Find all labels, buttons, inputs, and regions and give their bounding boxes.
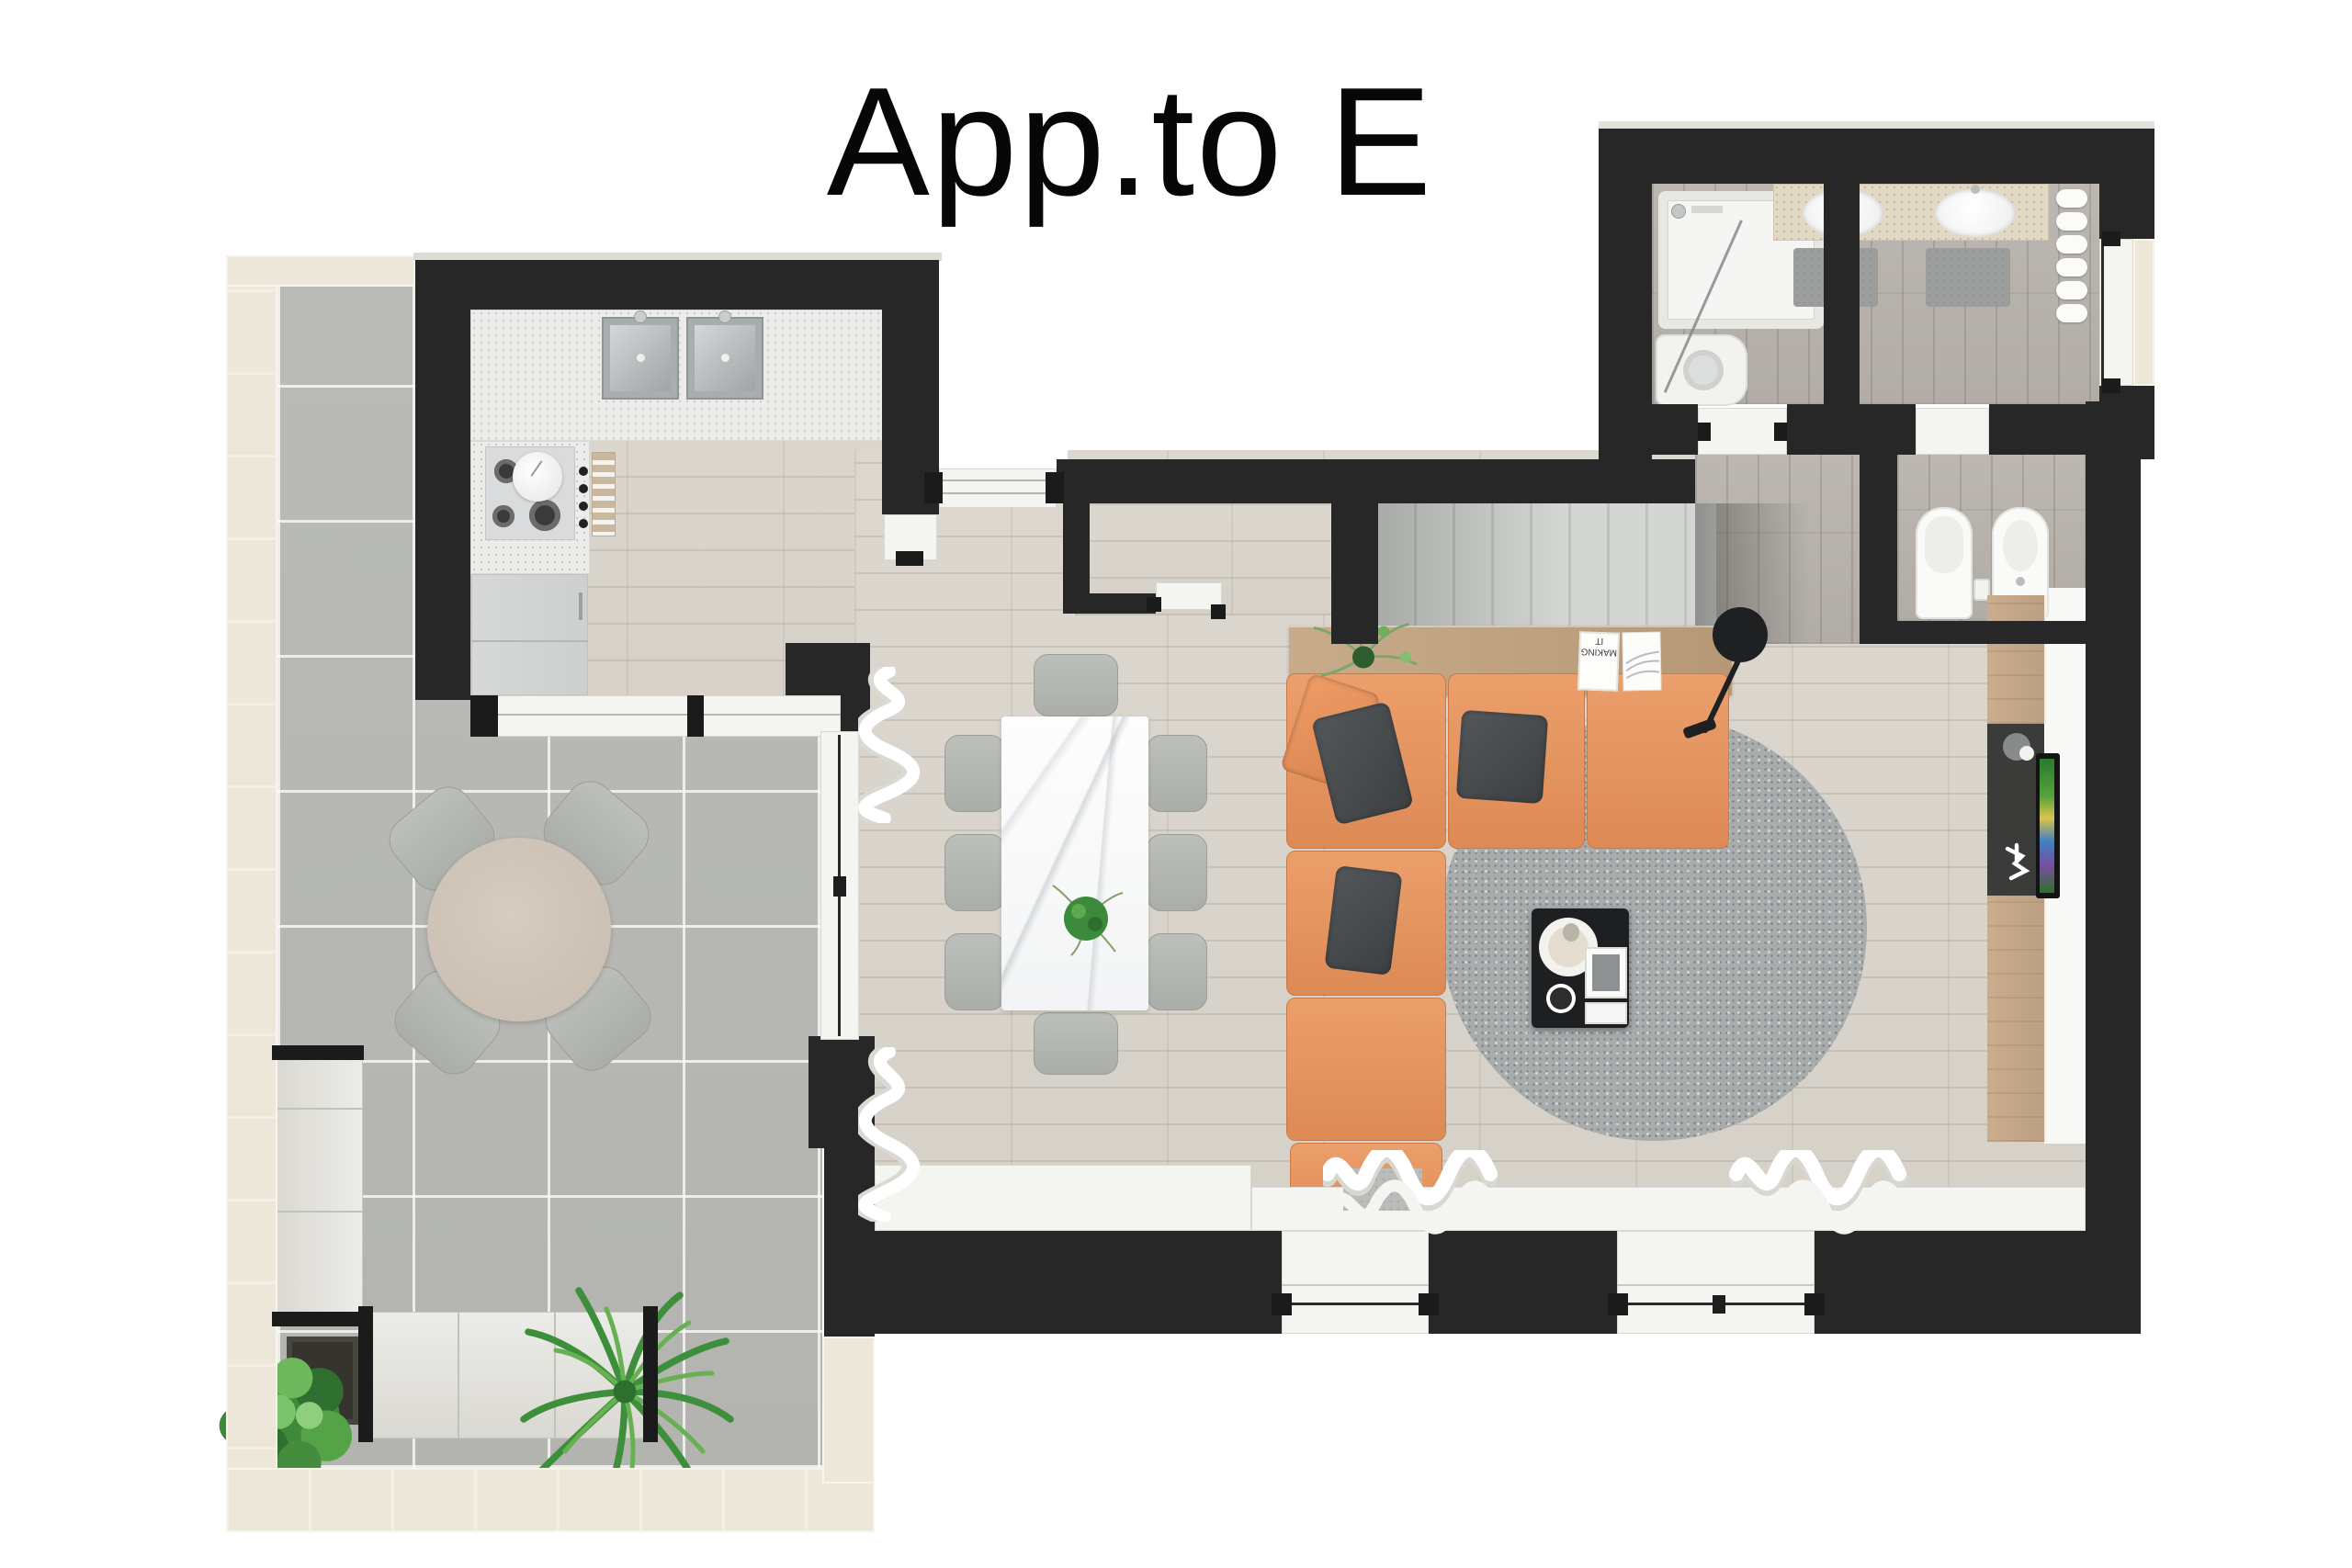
window-bottom-b (1617, 1231, 1815, 1334)
window-stub (1804, 1293, 1825, 1315)
bathroom-window (2099, 239, 2133, 386)
curtain-vertical (858, 1047, 922, 1222)
book-title: MAKING IT (1580, 635, 1618, 657)
throw-pillow (1324, 865, 1402, 976)
bath-wall-top (1599, 129, 2154, 184)
bottom-wall-b (1429, 1231, 1617, 1334)
partition-stub (687, 695, 704, 737)
threshold-stub (1698, 423, 1711, 441)
faucet-icon (718, 310, 731, 323)
hob-control-knobs (579, 467, 590, 536)
dining-chair (1147, 735, 1207, 812)
stacked-books (1585, 1002, 1627, 1024)
sofa-section (1286, 998, 1446, 1141)
marble-dining-table (1001, 716, 1148, 1010)
window-outer-sill (2133, 239, 2154, 386)
towel-radiator (2056, 189, 2089, 336)
kitchen-sink (602, 317, 679, 400)
figurine-icon (2000, 841, 2033, 886)
bath-wall-left (1599, 129, 1652, 503)
terrace-wall-bottom (226, 1468, 875, 1532)
dining-chair (1034, 654, 1118, 716)
window-stub (2102, 231, 2120, 246)
throw-pillow (1456, 710, 1548, 804)
tub-control (1691, 206, 1723, 213)
floor-lamp (1654, 602, 1782, 758)
toilet (1916, 507, 1973, 619)
dining-chair (1147, 933, 1207, 1010)
kitchen-glass-partition (470, 695, 841, 737)
exterior-cover (939, 395, 1068, 470)
outdoor-dining-table (427, 838, 611, 1021)
sofa-frame-top (272, 1045, 364, 1060)
wc-wall-left (1860, 404, 1897, 644)
dining-chair (944, 834, 1005, 911)
wood-sideboard-top (1987, 595, 2046, 724)
tv-screen (2040, 759, 2054, 893)
faucet-icon (1971, 185, 1980, 194)
sill-stub (896, 551, 923, 566)
terrace-wall-top (226, 255, 415, 287)
dining-chair (1034, 1012, 1118, 1075)
window-stub (2102, 378, 2120, 393)
terrace-wall-right-lower (822, 1337, 875, 1483)
right-wall (2086, 401, 2141, 1334)
sofa-frame-mid (272, 1312, 364, 1326)
terrace-wall-left (226, 255, 277, 1532)
decor-dot-icon (2019, 746, 2034, 761)
dining-chair (944, 933, 1005, 1010)
window-stub (1272, 1293, 1292, 1315)
bath-mat (1926, 248, 2010, 307)
bath-wall-bottom-a (1652, 404, 1698, 455)
stair-side-wall (1331, 496, 1378, 644)
console-book: MAKING IT (1577, 631, 1620, 691)
faucet-icon (1671, 204, 1686, 219)
bath-partition (1824, 184, 1860, 404)
dining-chair (1147, 834, 1207, 911)
page-title: App.to E (717, 53, 1543, 231)
faucet-icon (634, 310, 647, 323)
coffee-table (1532, 908, 1629, 1028)
washing-machine (1656, 334, 1747, 406)
kitchen-wall-top (415, 260, 939, 310)
table-plant (1046, 874, 1128, 963)
hallway-window (939, 468, 1057, 508)
fridge (471, 574, 588, 695)
curtain (1729, 1150, 1909, 1235)
kettle (513, 452, 562, 502)
wood-sideboard-bottom (1987, 896, 2046, 1142)
curtain-vertical (858, 667, 922, 823)
television (2036, 753, 2060, 898)
dish (1546, 984, 1576, 1013)
nook-wall-bottom (1063, 593, 1156, 614)
kitchen-wall-left (415, 260, 470, 700)
sofa-frame-left (358, 1306, 373, 1442)
window-stub (924, 472, 943, 503)
dining-chair (944, 735, 1005, 812)
slatted-cabinet (592, 452, 616, 536)
stacked-books (1585, 947, 1627, 998)
outdoor-sofa-vertical (276, 1055, 363, 1325)
bottom-wall-a (824, 1231, 1282, 1334)
kitchen-sink (686, 317, 763, 400)
partition-stub (470, 695, 498, 737)
window-bottom-a (1282, 1231, 1429, 1334)
window-stub (1046, 472, 1064, 503)
threshold-stub (1774, 423, 1787, 441)
curtain (1323, 1150, 1498, 1235)
oval-sink (1935, 189, 2016, 237)
floor-plan-canvas: App.to E (0, 0, 2352, 1568)
wc-wall-bottom (1860, 621, 2088, 644)
bath-wall-right-upper (2099, 129, 2154, 239)
window-stub (1419, 1293, 1439, 1315)
door-threshold (1916, 408, 1989, 455)
sofa-frame-right (643, 1306, 658, 1442)
window-sill-bench (875, 1165, 1251, 1231)
door-hinge-stub (1211, 604, 1226, 619)
window-stub (1608, 1293, 1628, 1315)
door-hinge-stub (1147, 597, 1161, 612)
sliding-glass-door (820, 731, 859, 1040)
